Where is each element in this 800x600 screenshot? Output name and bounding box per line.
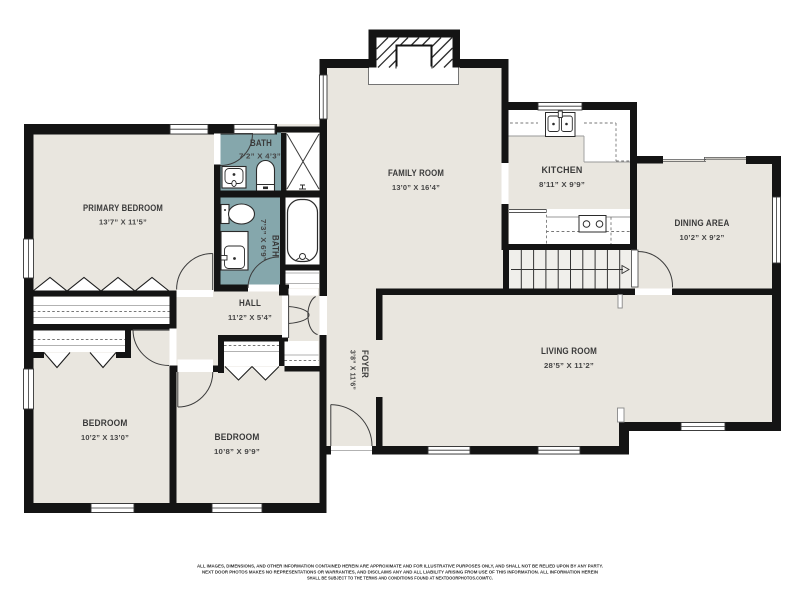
- svg-text:13’7” X 11’5”: 13’7” X 11’5”: [99, 218, 147, 227]
- svg-text:BEDROOM: BEDROOM: [215, 432, 260, 442]
- svg-text:BATH: BATH: [250, 138, 272, 148]
- svg-text:ALL IMAGES, DIMENSIONS, AND OT: ALL IMAGES, DIMENSIONS, AND OTHER INFORM…: [197, 564, 603, 569]
- svg-text:LIVING ROOM: LIVING ROOM: [541, 346, 597, 356]
- svg-text:NEXT DOOR PHOTOS MAKES NO REPR: NEXT DOOR PHOTOS MAKES NO REPRESENTATION…: [202, 570, 599, 575]
- svg-text:7’2” X 4’3”: 7’2” X 4’3”: [239, 152, 281, 161]
- svg-text:SHALL BE SUBJECT TO THE TERMS: SHALL BE SUBJECT TO THE TERMS AND CONDIT…: [307, 576, 493, 581]
- svg-text:28’5” X 11’2”: 28’5” X 11’2”: [544, 361, 594, 370]
- svg-text:BEDROOM: BEDROOM: [83, 418, 128, 428]
- svg-text:KITCHEN: KITCHEN: [542, 165, 583, 175]
- svg-text:HALL: HALL: [239, 298, 261, 308]
- svg-text:FAMILY ROOM: FAMILY ROOM: [388, 168, 444, 178]
- svg-text:10’2” X 9’2”: 10’2” X 9’2”: [680, 233, 725, 242]
- svg-text:PRIMARY BEDROOM: PRIMARY BEDROOM: [83, 203, 163, 213]
- svg-text:7’3” X 6’9”: 7’3” X 6’9”: [259, 219, 268, 261]
- svg-text:BATH: BATH: [271, 235, 281, 257]
- svg-text:FOYER: FOYER: [360, 350, 370, 378]
- svg-text:10’8” X 9’9”: 10’8” X 9’9”: [214, 447, 260, 456]
- svg-text:13’0” X 16’4”: 13’0” X 16’4”: [392, 183, 440, 192]
- svg-text:DINING AREA: DINING AREA: [675, 218, 730, 228]
- svg-text:11’2” X 5’4”: 11’2” X 5’4”: [228, 313, 272, 322]
- svg-text:10’2” X 13’0”: 10’2” X 13’0”: [81, 433, 129, 442]
- svg-text:8’11” X 9’9”: 8’11” X 9’9”: [539, 180, 585, 189]
- svg-text:3’8” X 11’6”: 3’8” X 11’6”: [349, 350, 358, 390]
